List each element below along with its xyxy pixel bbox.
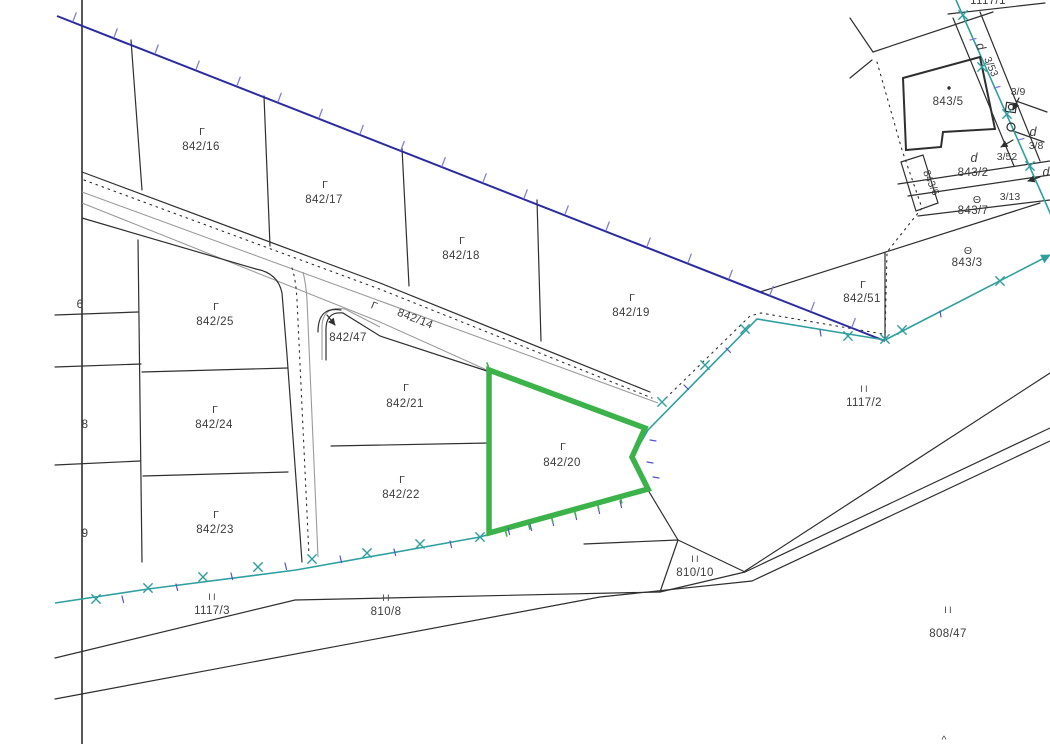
landuse-symbol: II (944, 605, 954, 616)
landuse-symbol: Γ (459, 235, 465, 247)
blue-boundary-tick-icon (319, 109, 322, 118)
parcel-label-3-8: 3/8 (1029, 140, 1044, 152)
landuse-symbol: II (860, 384, 870, 395)
parcel-label-842-51: 842/51 (843, 293, 881, 305)
leader-arrows (327, 98, 1040, 325)
edge-partial-label-top: 1117/1 (970, 0, 1006, 7)
edge-partial-symbol-bottom: ^ (942, 734, 947, 744)
parcel-label-842-24: 842/24 (195, 419, 233, 431)
landuse-symbol: II (208, 592, 218, 603)
building-center-dot (947, 86, 950, 89)
blue-boundary-tick-icon (360, 125, 363, 134)
blue-boundary-tick-icon (770, 286, 773, 295)
landuse-symbol: Γ (403, 382, 409, 394)
blue-boundary-tick-icon (647, 238, 650, 247)
road-lines (82, 172, 658, 562)
arrow-3-52 (1001, 140, 1013, 147)
landuse-symbol: Γ (560, 441, 566, 453)
boundary-tick-icon (122, 596, 124, 603)
parcel-label-3-52: 3/52 (997, 151, 1018, 163)
parcel-label-842-19: 842/19 (612, 307, 650, 319)
boundary-tick-icon (1018, 139, 1024, 141)
parcel-label-843-7: 843/7 (958, 205, 989, 217)
blue-boundary-tick-icon (196, 61, 199, 70)
blue-boundary-line (57, 16, 885, 341)
parcel-boundaries (55, 3, 1050, 699)
parcel-label-842-23: 842/23 (196, 524, 234, 536)
boundary-tick-icon (653, 477, 659, 478)
parcel-label-842-16: 842/16 (182, 141, 220, 153)
building-label-843-5: 843/5 (933, 96, 964, 108)
blue-boundary-tick-icon (565, 206, 568, 215)
edge-partial-label: 8 (82, 419, 89, 431)
blue-boundary-tick-icon (442, 158, 445, 167)
blue-boundary-tick-icon (278, 93, 281, 102)
landuse-symbol: Γ (369, 300, 379, 313)
parcel-label-843-6: 843/6 (920, 168, 941, 197)
parcel-label-843-2: 843/2 (958, 167, 989, 179)
blue-boundary-tick-icon (688, 254, 691, 263)
blue-boundary-tick-icon (237, 77, 240, 86)
landuse-symbol: d (1030, 125, 1038, 139)
parcel-label-842-20[interactable]: 842/20 (543, 457, 581, 469)
road-label-842-14: 842/14 (395, 307, 435, 332)
landuse-symbol: II (691, 554, 701, 565)
parcel-label-842-47: 842/47 (329, 332, 367, 344)
highlighted-parcel-842-20[interactable] (489, 370, 648, 533)
landuse-symbol: Γ (860, 279, 866, 291)
landuse-symbol: Γ (213, 509, 219, 521)
teal-lines (55, 0, 1050, 603)
landuse-symbol: Γ (629, 292, 635, 304)
parcel-label-810-10: 810/10 (676, 567, 714, 579)
parcel-label-842-22: 842/22 (382, 489, 420, 501)
parcel-label-842-21: 842/21 (386, 398, 424, 410)
parcel-label-3-13: 3/13 (1000, 191, 1021, 203)
boundary-tick-icon (394, 549, 396, 556)
dotted-boundaries (666, 62, 922, 398)
landuse-symbol: Γ (213, 301, 219, 313)
parcel-label-842-17: 842/17 (305, 194, 343, 206)
blue-boundary-tick-icon (811, 302, 814, 311)
blue-boundary-tick-icon (483, 174, 486, 183)
parcel-label-842-18: 842/18 (442, 250, 480, 262)
cadastral-map: Γ 842/16 Γ 842/17 Γ 842/18 Γ 842/19 Γ 84… (0, 0, 1050, 744)
landuse-symbol: Γ (399, 474, 405, 486)
parcel-label-810-8: 810/8 (371, 606, 402, 618)
parcel-label-842-25: 842/25 (196, 316, 234, 328)
parcel-label-1117-3: 1117/3 (194, 605, 230, 617)
landuse-symbol: Θ (964, 245, 972, 257)
parcel-label-843-3: 843/3 (952, 257, 983, 269)
landuse-symbol: Γ (199, 126, 205, 138)
boundary-tick-icon (650, 440, 656, 441)
map-canvas: Γ 842/16 Γ 842/17 Γ 842/18 Γ 842/19 Γ 84… (0, 0, 1050, 744)
blue-boundary-tick-icon (73, 13, 76, 22)
boundary-tick-icon (684, 385, 689, 390)
blue-boundary-tick-icon (155, 45, 158, 54)
blue-boundary-tick-icon (729, 270, 732, 279)
boundary-tick-icon (285, 563, 287, 570)
landuse-symbol: Γ (212, 404, 218, 416)
blue-boundary-tick-icon (606, 222, 609, 231)
boundary-tick-icon (647, 462, 653, 463)
landuse-symbol: II (382, 593, 392, 604)
edge-partial-label: 6 (77, 299, 84, 311)
parcel-label-1117-2: 1117/2 (846, 397, 882, 409)
edge-partial-symbol: d (1043, 165, 1050, 179)
edge-partial-label: 9 (82, 528, 89, 540)
blue-boundary-tick-icon (852, 319, 855, 328)
parcel-label-808-47: 808/47 (929, 628, 967, 640)
blue-boundary-tick-icon (524, 190, 527, 199)
boundary-tick-icon (820, 330, 821, 336)
parcel-label-3-9: 3/9 (1011, 86, 1026, 98)
landuse-symbol: Γ (322, 179, 328, 191)
blue-boundary-tick-icon (114, 29, 117, 38)
landuse-symbol: d (971, 151, 979, 165)
boundary-tick-icon (970, 39, 976, 41)
